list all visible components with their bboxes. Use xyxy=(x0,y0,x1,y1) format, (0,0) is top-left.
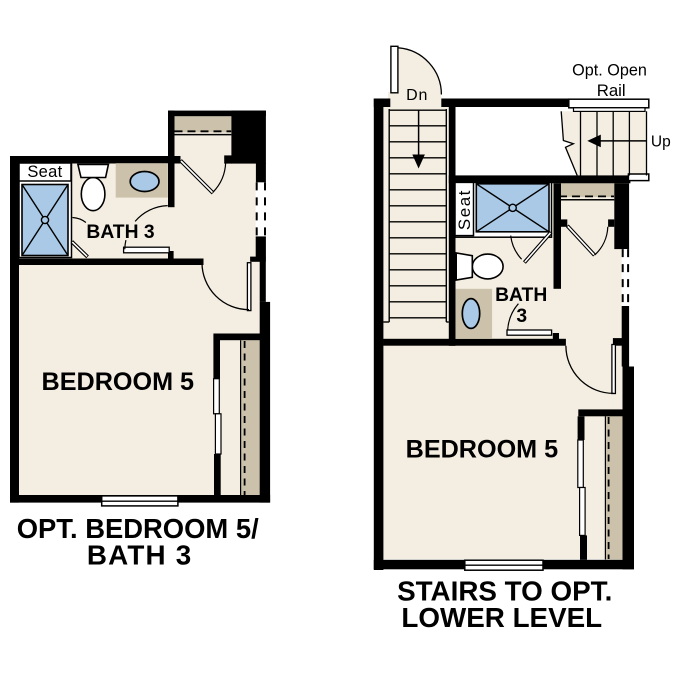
svg-text:BEDROOM 5: BEDROOM 5 xyxy=(42,368,195,396)
svg-text:Up: Up xyxy=(651,133,671,150)
svg-text:Seat: Seat xyxy=(27,163,62,181)
svg-text:BEDROOM 5: BEDROOM 5 xyxy=(406,436,559,464)
svg-text:Seat: Seat xyxy=(455,189,474,230)
svg-text:LOWER LEVEL: LOWER LEVEL xyxy=(401,602,602,633)
svg-text:Opt. Open: Opt. Open xyxy=(572,61,647,79)
svg-text:Rail: Rail xyxy=(597,81,626,100)
svg-text:BATH 3: BATH 3 xyxy=(87,540,193,571)
svg-text:Dn: Dn xyxy=(406,87,428,104)
svg-text:3: 3 xyxy=(516,306,527,327)
svg-text:BATH 3: BATH 3 xyxy=(86,222,154,243)
svg-text:BATH: BATH xyxy=(495,285,547,306)
